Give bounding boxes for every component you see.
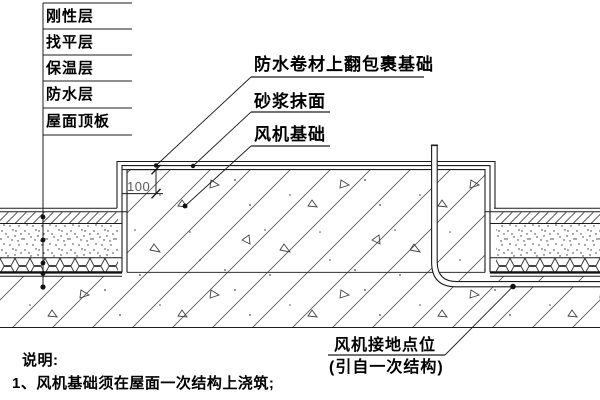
callout-leveling-layer: 找平层 — [46, 32, 94, 53]
notes-heading: 说明: — [22, 352, 59, 371]
dimension-100-text: 100 — [127, 179, 150, 195]
label-mortar-finish: 砂浆抹面 — [254, 91, 326, 112]
callout-rigid-layer: 刚性层 — [46, 6, 94, 27]
label-membrane-wrap: 防水卷材上翻包裹基础 — [254, 54, 434, 75]
construction-detail-drawing: 刚性层 找平层 保温层 防水层 屋面顶板 防水卷材上翻包裹基础 砂浆抹面 风机基… — [0, 0, 600, 400]
callout-waterproof-layer: 防水层 — [46, 84, 94, 105]
callout-roof-slab: 屋面顶板 — [46, 111, 110, 132]
callout-insulation-layer: 保温层 — [46, 58, 94, 79]
label-grounding-point: 风机接地点位 — [334, 336, 436, 356]
label-fan-foundation: 风机基础 — [254, 124, 326, 145]
label-grounding-source: (引自一次结构) — [329, 358, 444, 378]
notes-item-1: 1、风机基础须在屋面一次结构上浇筑; — [12, 375, 274, 394]
